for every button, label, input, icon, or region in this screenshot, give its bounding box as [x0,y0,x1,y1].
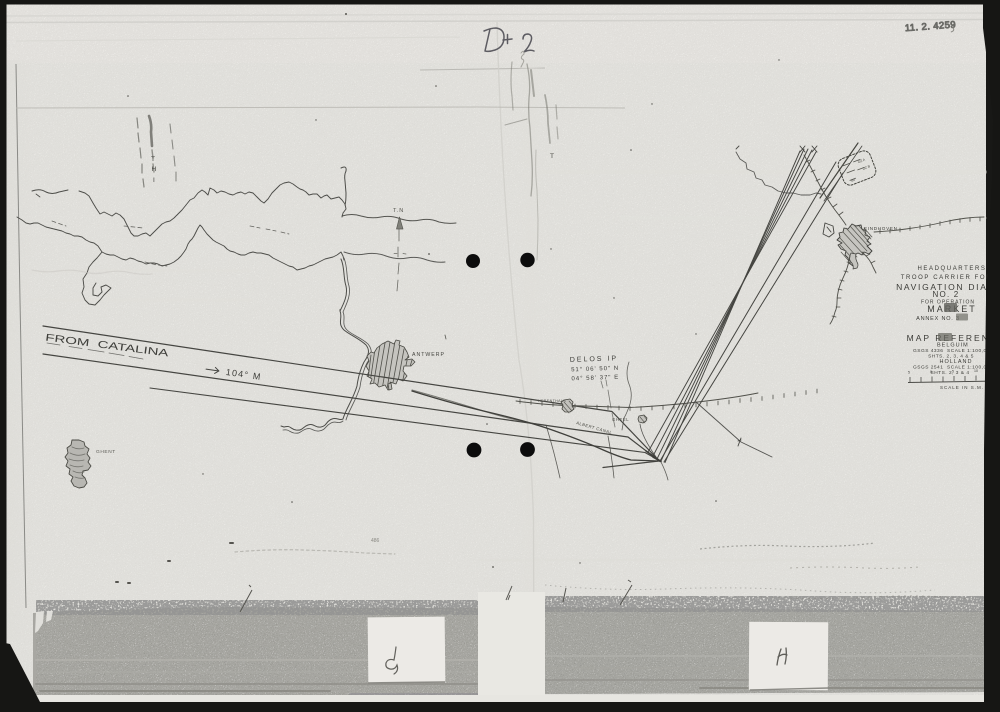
svg-text:GHEEL: GHEEL [612,417,629,422]
svg-text:TROOP CARRIER FORCES: TROOP CARRIER FORCES [901,275,1000,281]
svg-text:5: 5 [952,370,954,374]
svg-text:T.N: T.N [393,208,404,214]
svg-text:ANNEX NO. 3: ANNEX NO. 3 [916,316,960,322]
svg-text:NO. 2: NO. 2 [933,290,960,299]
svg-text:SCALE IN S.M.: SCALE IN S.M. [940,385,984,390]
svg-text:GHENT: GHENT [96,449,116,455]
svg-text:T: T [151,156,155,163]
svg-text:HOLLAND: HOLLAND [940,359,973,365]
svg-text:ANTWERP: ANTWERP [412,352,445,358]
svg-text:BELGUIM: BELGUIM [937,343,969,349]
svg-text:10: 10 [974,369,978,373]
svg-text:GSGS 4336 SCALE 1:100,000: GSGS 4336 SCALE 1:100,000 [913,348,993,354]
svg-text:486: 486 [371,538,380,544]
svg-text:H: H [152,166,157,173]
svg-text:5: 5 [908,371,910,375]
svg-text:HEADQUARTERS: HEADQUARTERS [917,266,986,272]
svg-text:T: T [550,153,554,160]
svg-text:HERENTHALS: HERENTHALS [538,399,566,403]
svg-text:0: 0 [930,370,932,374]
svg-text:I: I [153,177,155,184]
svg-text:SHTS. 2, 3 & 4: SHTS. 2, 3 & 4 [931,370,970,376]
